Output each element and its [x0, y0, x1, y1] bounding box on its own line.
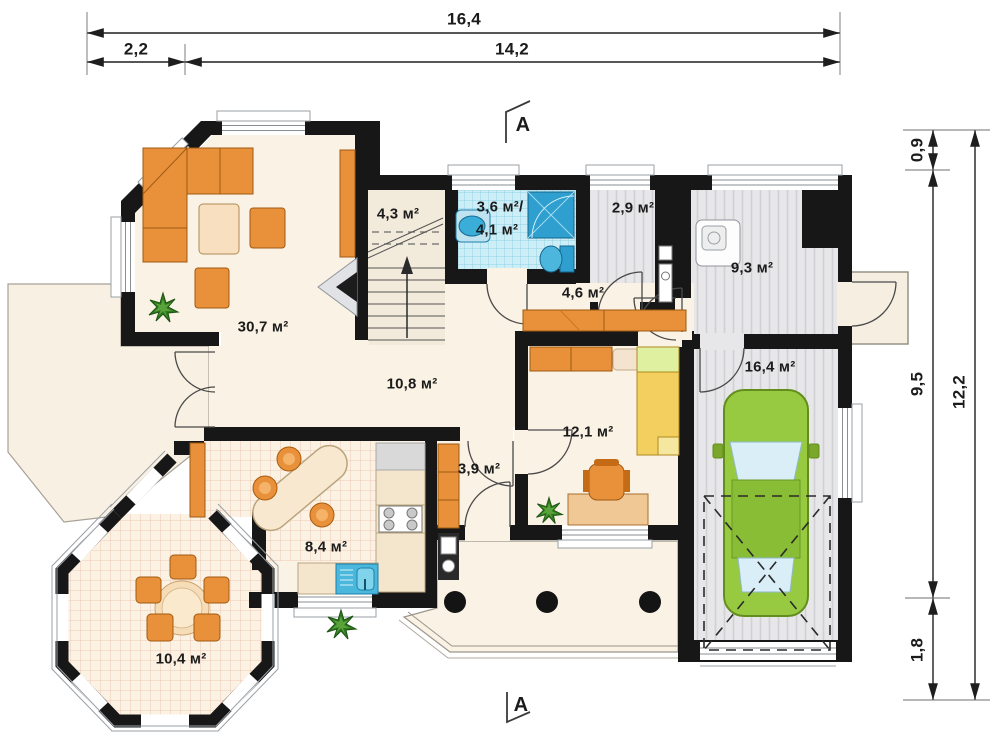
room-label-kitchen: 8,4 м² — [305, 540, 347, 555]
room-label-bedroom: 12,1 м² — [563, 425, 614, 440]
coffee-table — [199, 204, 239, 254]
side-door-landing — [850, 272, 908, 344]
dim-top-total: 16,4 — [447, 11, 481, 28]
floor-plan-drawing — [0, 0, 1000, 737]
dining-cabinet — [190, 443, 205, 517]
dim-top-right: 14,2 — [495, 41, 529, 58]
room-label-bathroom: 3,6 м²/ — [477, 200, 524, 215]
room-label-bathroom-2: 4,1 м² — [476, 223, 518, 238]
hall-floor-b — [445, 283, 515, 345]
dim-right-total: 12,2 — [951, 375, 968, 409]
dim-right-bottom: 1,8 — [909, 638, 926, 662]
garage-east-window — [838, 404, 862, 502]
kitchen-sink — [336, 564, 378, 594]
living-top-window — [217, 111, 310, 135]
tall-cabinet — [340, 150, 355, 257]
section-mark-top: A — [516, 115, 531, 135]
garage-door — [700, 642, 836, 666]
stove — [379, 506, 422, 532]
bedroom-cabinet — [530, 347, 612, 371]
car — [713, 390, 819, 616]
hallway-wardrobe — [523, 310, 686, 331]
floor-plan: 30,7 м² 4,3 м² 3,6 м²/ 4,1 м² 2,9 м² 9,3… — [0, 0, 1000, 737]
dim-right-top: 0,9 — [909, 138, 926, 162]
section-mark-bottom: A — [514, 695, 529, 715]
living-west-window — [111, 217, 135, 297]
bath-window — [448, 165, 519, 190]
room-label-hall: 10,8 м² — [387, 377, 438, 392]
pantry-window — [586, 165, 654, 190]
room-label-utility: 9,3 м² — [731, 261, 773, 276]
boiler-appliance — [659, 246, 672, 302]
armchair — [250, 208, 285, 248]
shower — [528, 192, 574, 238]
room-label-stair-hall: 4,3 м² — [377, 207, 419, 222]
room-label-dining: 10,4 м² — [156, 652, 207, 667]
garage-top-window — [708, 165, 842, 190]
armchair — [195, 268, 229, 308]
corridor-wardrobe — [438, 444, 459, 580]
room-label-pantry: 2,9 м² — [612, 201, 654, 216]
bedroom-window — [558, 525, 652, 548]
room-label-hallway: 4,6 м² — [562, 286, 604, 301]
room-label-living: 30,7 м² — [238, 320, 289, 335]
kitchen-window — [294, 592, 376, 617]
dim-right-middle: 9,5 — [909, 372, 926, 396]
room-label-corridor: 3,9 м² — [458, 462, 500, 477]
bed — [637, 347, 679, 455]
room-label-garage: 16,4 м² — [745, 360, 796, 375]
dim-top-left: 2,2 — [124, 41, 148, 58]
toilet — [540, 246, 574, 272]
